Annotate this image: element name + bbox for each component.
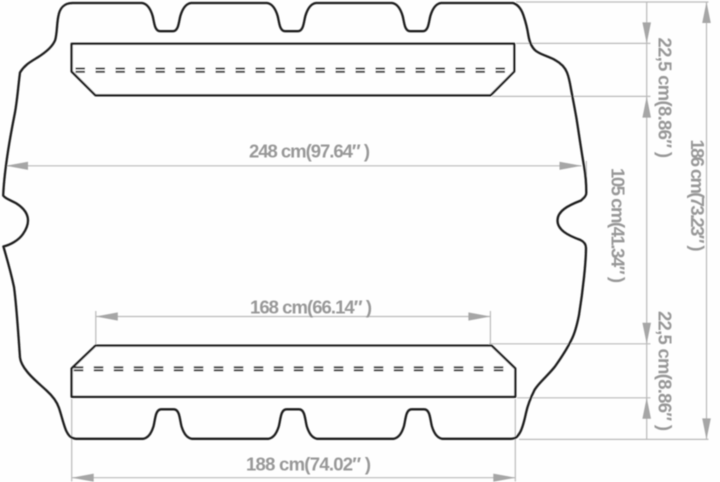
- svg-text:22,5 cm(8.86″ ): 22,5 cm(8.86″ ): [655, 311, 676, 431]
- svg-text:188 cm(74.02″ ): 188 cm(74.02″ ): [246, 453, 371, 474]
- svg-text:105 cm(41.34″ ): 105 cm(41.34″ ): [608, 168, 629, 283]
- svg-text:186 cm(73.23″ ): 186 cm(73.23″ ): [687, 140, 708, 252]
- svg-text:248 cm(97.64″ ): 248 cm(97.64″ ): [249, 141, 370, 162]
- svg-text:22,5 cm(8.86″ ): 22,5 cm(8.86″ ): [655, 38, 676, 159]
- svg-text:168 cm(66.14″ ): 168 cm(66.14″ ): [250, 296, 372, 317]
